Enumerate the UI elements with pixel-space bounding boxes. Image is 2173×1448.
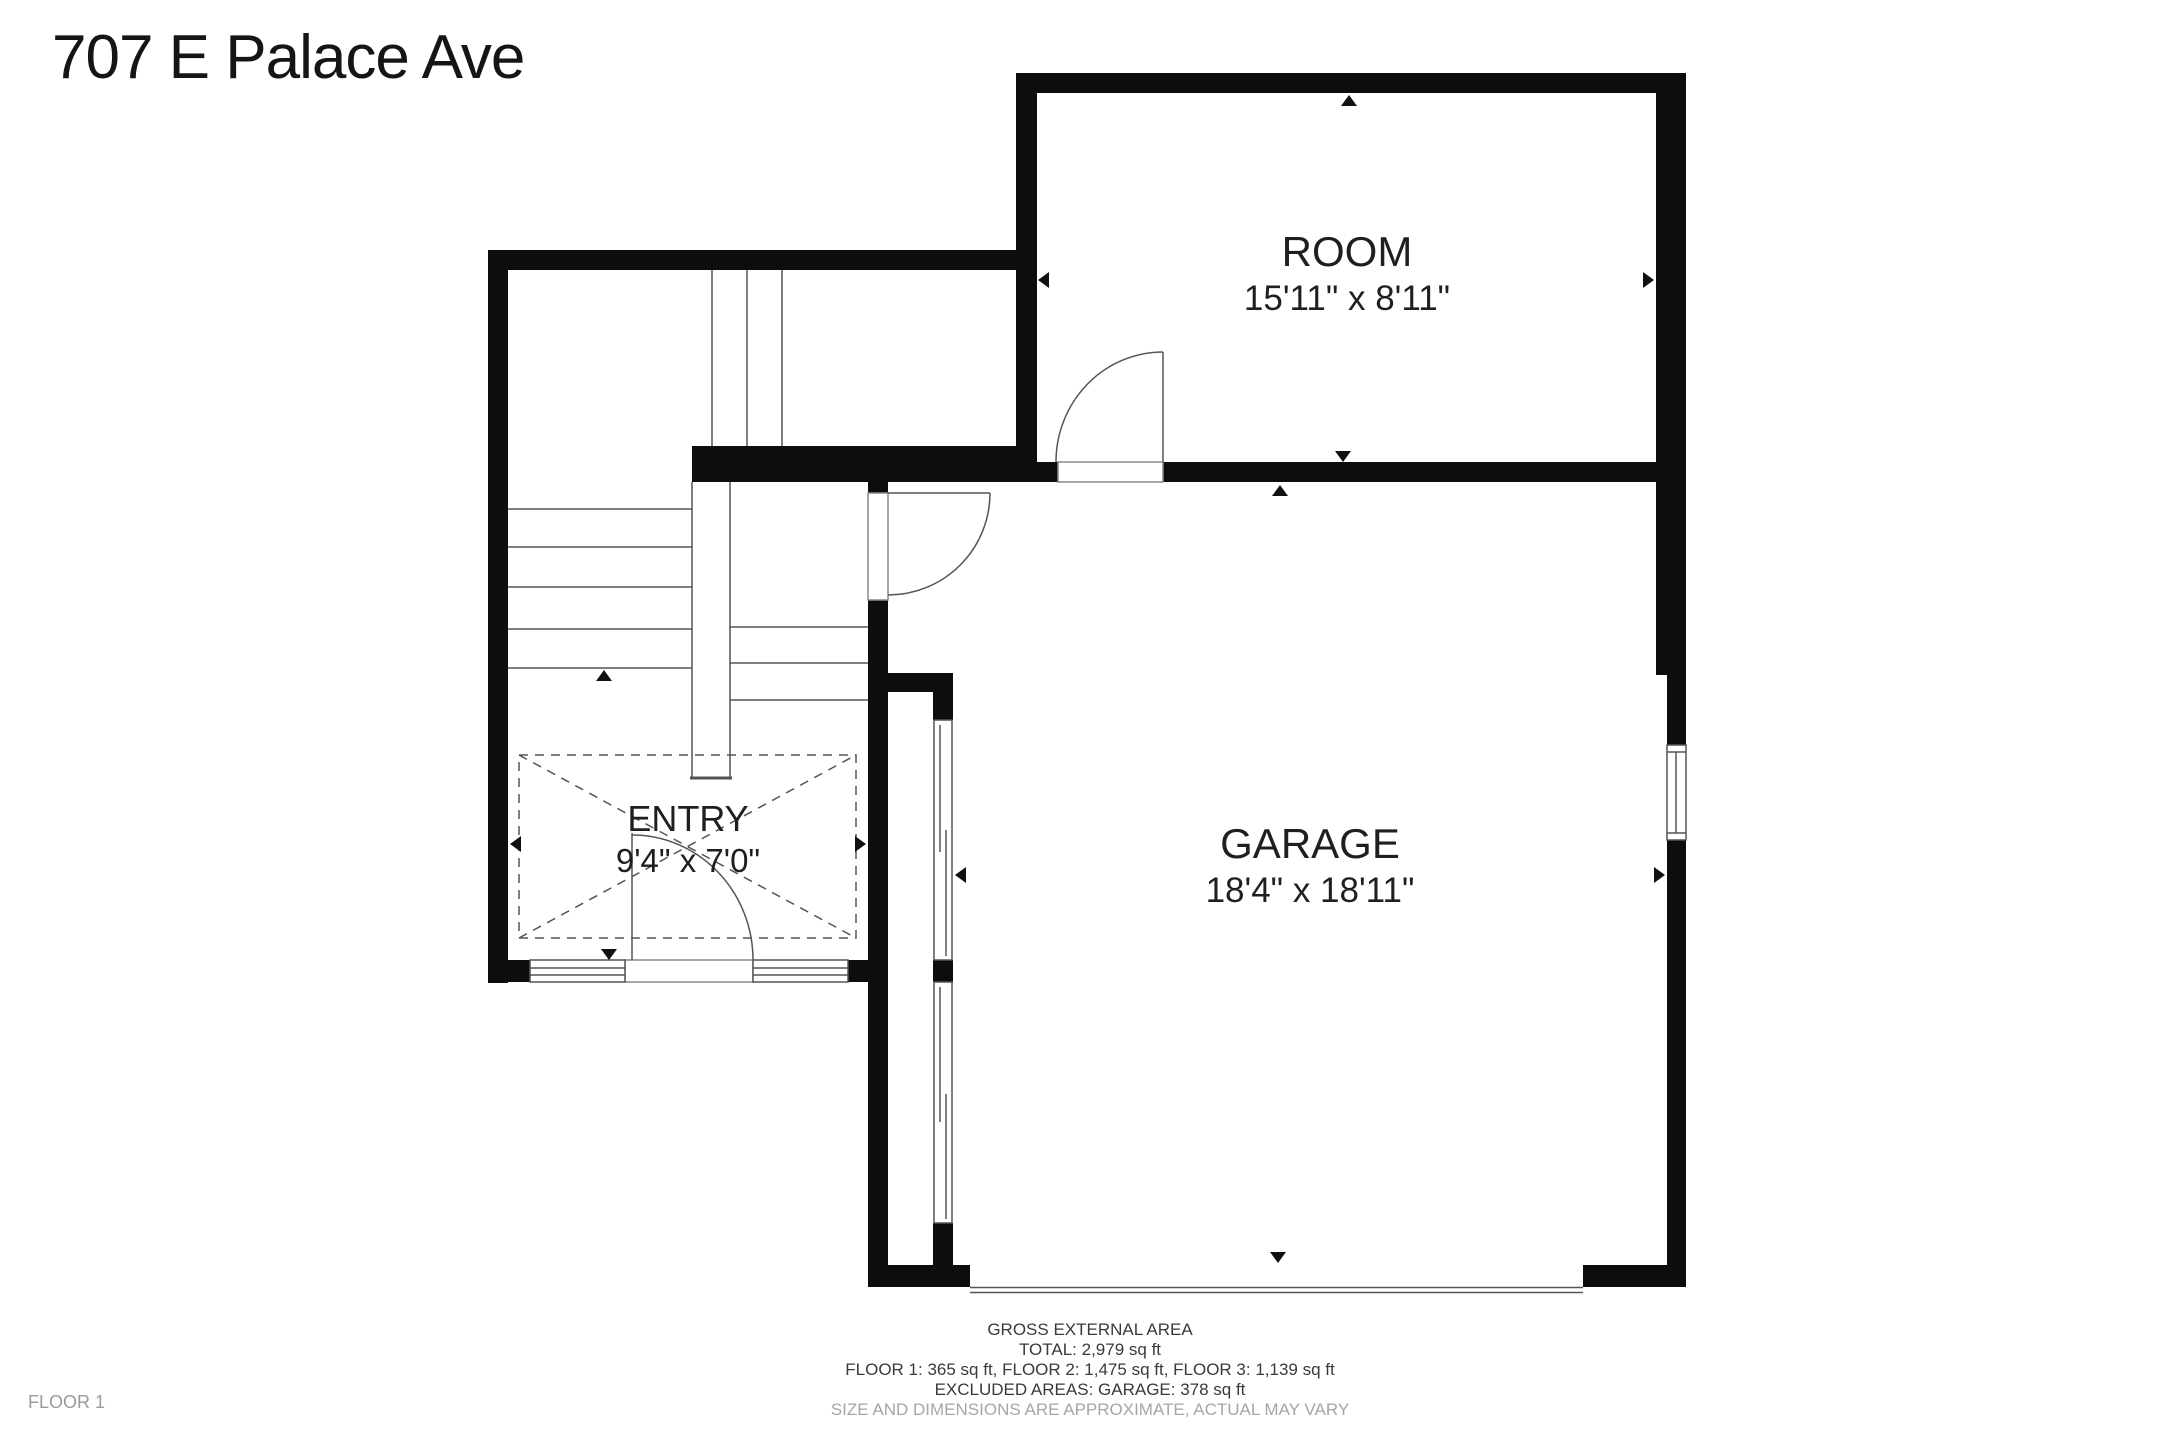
wall-garage-left-c (933, 1223, 953, 1266)
wall-bottom-right (1583, 1265, 1686, 1287)
entry-window-right (753, 960, 848, 982)
wall-hall-top (488, 250, 1037, 270)
room-marker-up (1341, 95, 1357, 106)
entry-window-left (530, 960, 625, 982)
summary-total: TOTAL: 2,979 sq ft (831, 1340, 1349, 1360)
stair-stringer (690, 482, 732, 778)
garage-vehicle-door (970, 1288, 1583, 1293)
wall-divider (692, 446, 1017, 482)
garage-dimensions: 18'4" x 18'11" (1206, 868, 1415, 914)
entry-marker-up (596, 670, 612, 681)
stair-left-flight (508, 509, 692, 668)
wall-room-bottom-right (1163, 462, 1656, 482)
summary-floors: FLOOR 1: 365 sq ft, FLOOR 2: 1,475 sq ft… (831, 1360, 1349, 1380)
hall-to-garage-door (888, 493, 990, 595)
garage-window-left-lower (934, 982, 952, 1223)
wall-right-mid (1667, 675, 1686, 745)
entry-marker-right (855, 836, 866, 852)
entry-marker-down (601, 949, 617, 960)
garage-window-right (1667, 745, 1686, 840)
wall-garage-left-a (933, 692, 953, 720)
wall-left (488, 250, 508, 983)
wall-room-left (1016, 73, 1037, 482)
dimension-markers (510, 95, 1665, 1263)
area-summary: GROSS EXTERNAL AREA TOTAL: 2,979 sq ft F… (831, 1320, 1349, 1420)
wall-room-top (1016, 73, 1686, 93)
entry-marker-left (510, 836, 521, 852)
entry-label-group: ENTRY 9'4" x 7'0" (616, 798, 760, 882)
stair-upper-flight (712, 270, 782, 446)
wall-entry-right-stub (868, 482, 888, 493)
front-door-opening (625, 960, 753, 982)
room-dimensions: 15'11" x 8'11" (1244, 276, 1450, 322)
garage-window-left-upper (934, 720, 952, 960)
plan-title: 707 E Palace Ave (52, 22, 524, 93)
garage-door-opening-jamb (868, 493, 888, 600)
floor-plan-page: 707 E Palace Ave ROOM 15'11" x 8'11" GAR… (0, 0, 2173, 1448)
stairs (508, 270, 868, 778)
room-door (1056, 352, 1163, 462)
wall-garage-left-b (933, 960, 953, 982)
wall-entry-bottom-a (488, 960, 530, 982)
garage-marker-left (955, 867, 966, 883)
floor-plan-drawing (0, 0, 2173, 1448)
garage-name: GARAGE (1206, 820, 1415, 868)
room-marker-down (1335, 451, 1351, 462)
garage-marker-down (1270, 1252, 1286, 1263)
garage-marker-right (1654, 867, 1665, 883)
wall-garage-left-stub (888, 673, 953, 692)
garage-marker-up (1272, 485, 1288, 496)
wall-entry-bottom-b (848, 960, 888, 982)
room-marker-right (1643, 272, 1654, 288)
summary-heading: GROSS EXTERNAL AREA (831, 1320, 1349, 1340)
room-marker-left (1038, 272, 1049, 288)
garage-label-group: GARAGE 18'4" x 18'11" (1206, 820, 1415, 914)
wall-entry-right (868, 600, 888, 1266)
door-openings (625, 462, 1163, 982)
floor-indicator: FLOOR 1 (28, 1392, 105, 1413)
wall-right-lower (1667, 840, 1686, 1287)
room-door-opening (1058, 462, 1163, 482)
doors (632, 352, 1583, 1293)
room-name: ROOM (1244, 228, 1450, 276)
summary-disclaimer: SIZE AND DIMENSIONS ARE APPROXIMATE, ACT… (831, 1400, 1349, 1420)
wall-right-upper (1656, 93, 1686, 675)
entry-name: ENTRY (616, 798, 760, 840)
summary-excluded: EXCLUDED AREAS: GARAGE: 378 sq ft (831, 1380, 1349, 1400)
walls (488, 73, 1686, 1287)
entry-dimensions: 9'4" x 7'0" (616, 840, 760, 882)
stair-right-flight (730, 627, 868, 700)
room-label-group: ROOM 15'11" x 8'11" (1244, 228, 1450, 322)
wall-bottom-left (868, 1265, 970, 1287)
wall-room-bottom-left (1016, 462, 1058, 482)
